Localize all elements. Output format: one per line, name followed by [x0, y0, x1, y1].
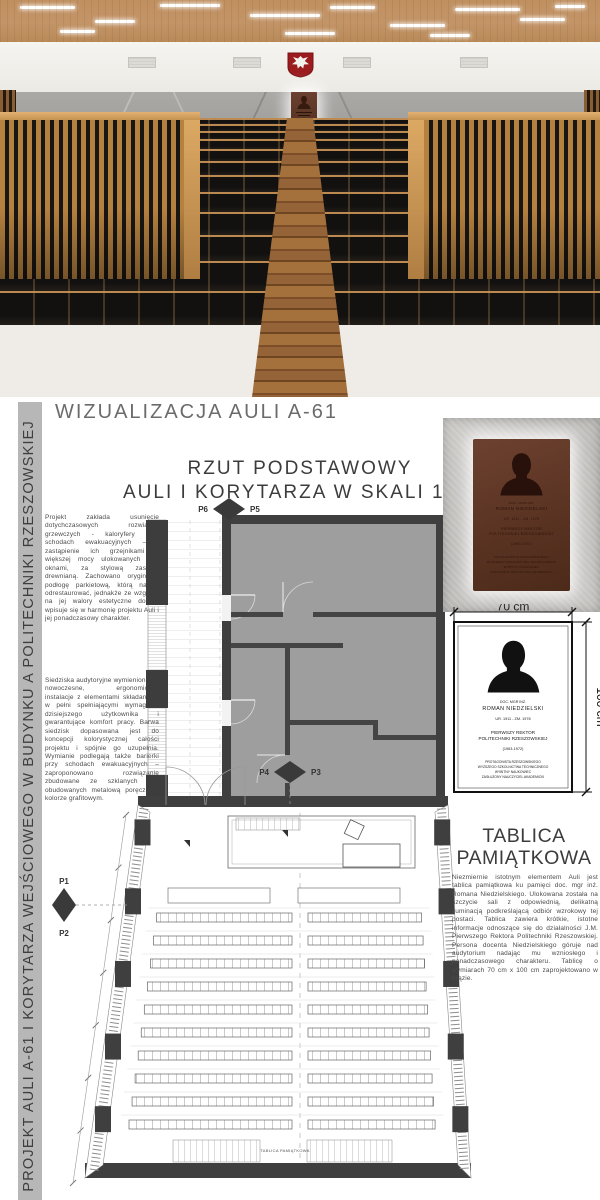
board-title-sidebar: PROJEKT AULI A-61 I KORYTARZA WEJŚCIOWEG…	[18, 402, 42, 1200]
memorial-plaque-photo: DOC. MGR INŻ. ROMAN NIEDZIELSKI UR. 1911…	[443, 418, 600, 612]
ceiling-light	[60, 30, 95, 33]
ceiling-light	[250, 14, 320, 17]
plan-back-wall-label: TABLICA PAMIĄTKOWA	[258, 1148, 312, 1153]
ceiling-light	[430, 34, 470, 37]
poland-eagle-emblem-icon	[287, 52, 314, 78]
svg-text:P2: P2	[59, 929, 69, 938]
visualization-heading: WIZUALIZACJA AULI A-61	[55, 401, 338, 424]
front-wall	[0, 42, 600, 92]
paragraph-memorial: Niezmiernie istotnym elementem Auli jest…	[452, 874, 598, 984]
vent-grille	[460, 57, 488, 68]
ceiling-light	[20, 6, 75, 9]
floor-plan: P6 P5 P4 P3 P1 P2	[40, 495, 475, 1195]
floor-plan-drawing: P6 P5 P4 P3 P1 P2	[40, 495, 475, 1195]
ceiling-light	[390, 24, 445, 27]
left-slat-parapet	[0, 112, 200, 279]
ceiling-light	[455, 8, 520, 11]
right-slat-parapet	[408, 112, 600, 279]
board-title: PROJEKT AULI A-61 I KORYTARZA WEJŚCIOWEG…	[21, 420, 37, 1192]
wood-ceiling	[0, 0, 600, 42]
vent-grille	[128, 57, 156, 68]
svg-text:P5: P5	[250, 505, 260, 514]
ceiling-light	[95, 20, 135, 23]
ceiling-light	[520, 18, 565, 21]
svg-text:P1: P1	[59, 877, 69, 886]
memorial-heading: TABLICA PAMIĄTKOWA	[448, 826, 600, 870]
section-marker-p1-p2: P1 P2	[52, 877, 130, 938]
svg-text:70 cm: 70 cm	[497, 604, 530, 614]
svg-text:P3: P3	[311, 768, 321, 777]
bronze-plaque: DOC. MGR INŻ. ROMAN NIEDZIELSKI UR. 1911…	[473, 439, 570, 591]
ceiling-light	[330, 6, 375, 9]
svg-text:P6: P6	[198, 505, 208, 514]
memorial-plaque-drawing: 70 cm 100 cm DOC. MGR INŻ. ROMAN NIEDZIE…	[446, 604, 600, 806]
ceiling-light	[285, 32, 335, 35]
aula-visualization-photo	[0, 0, 600, 397]
rector-portrait-silhouette	[499, 449, 544, 497]
vent-grille	[233, 57, 261, 68]
vent-grille	[343, 57, 371, 68]
presentation-board: PROJEKT AULI A-61 I KORYTARZA WEJŚCIOWEG…	[0, 0, 600, 1200]
ceiling-light	[555, 5, 585, 8]
svg-text:100 cm: 100 cm	[594, 687, 600, 726]
ceiling-light	[160, 4, 220, 7]
svg-text:P4: P4	[259, 768, 269, 777]
